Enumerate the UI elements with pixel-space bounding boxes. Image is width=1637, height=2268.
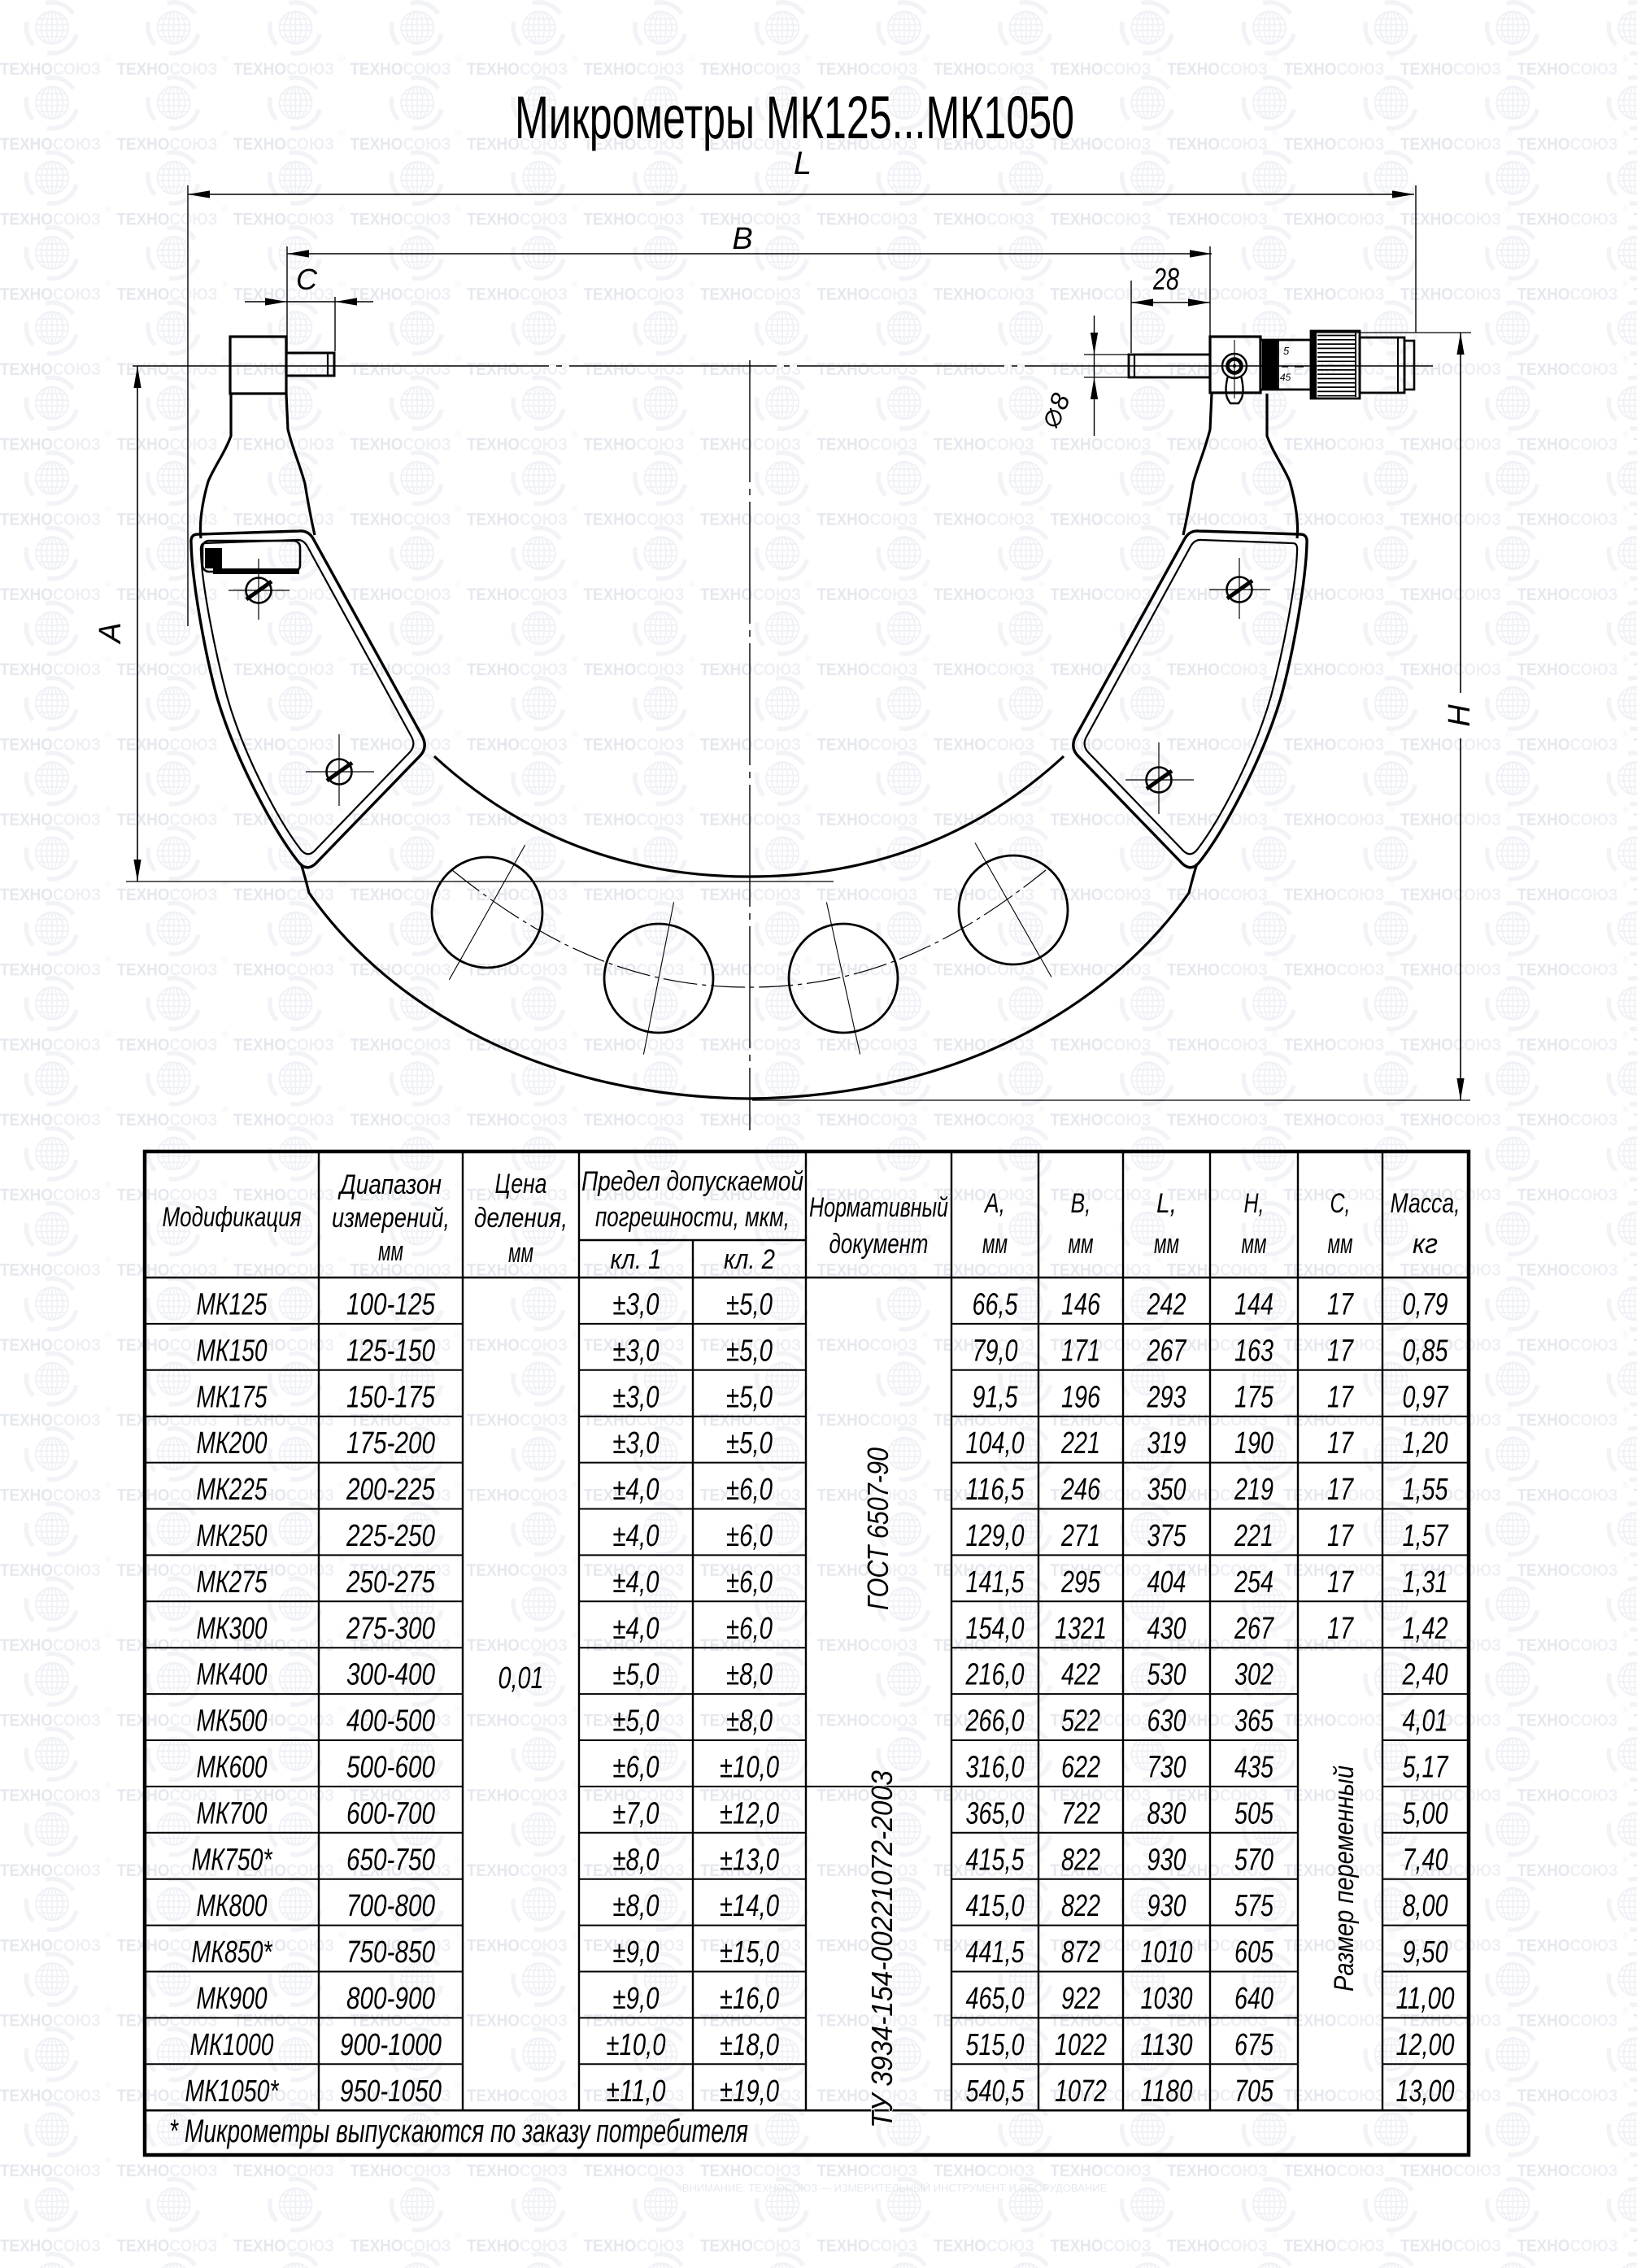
svg-text:мм: мм [1242, 1229, 1267, 1260]
svg-text:141,5: 141,5 [966, 1565, 1025, 1600]
svg-text:документ: документ [829, 1229, 929, 1260]
svg-text:1321: 1321 [1055, 1612, 1107, 1646]
svg-text:822: 822 [1061, 1889, 1100, 1923]
svg-text:мм: мм [508, 1238, 533, 1269]
svg-text:ГОСТ 6507-90: ГОСТ 6507-90 [861, 1447, 895, 1610]
svg-text:МК250: МК250 [197, 1519, 268, 1553]
svg-text:175-200: 175-200 [346, 1426, 435, 1460]
svg-text:171: 171 [1061, 1334, 1100, 1368]
svg-text:422: 422 [1061, 1658, 1100, 1692]
svg-text:365,0: 365,0 [966, 1796, 1025, 1831]
svg-text:±9,0: ±9,0 [613, 1982, 660, 2016]
svg-text:МК400: МК400 [197, 1658, 268, 1692]
svg-text:730: 730 [1147, 1751, 1186, 1785]
svg-text:17: 17 [1327, 1565, 1354, 1600]
svg-text:922: 922 [1061, 1982, 1100, 2016]
svg-text:1,57: 1,57 [1403, 1519, 1449, 1553]
svg-text:275-300: 275-300 [346, 1612, 435, 1646]
svg-text:190: 190 [1234, 1426, 1273, 1460]
svg-text:415,5: 415,5 [966, 1843, 1025, 1877]
svg-text:Модификация: Модификация [163, 1202, 302, 1233]
svg-text:±9,0: ±9,0 [613, 1935, 660, 1970]
svg-text:МК225: МК225 [197, 1473, 268, 1507]
svg-text:650-750: 650-750 [346, 1843, 435, 1877]
svg-text:640: 640 [1234, 1982, 1273, 2016]
svg-text:266,0: 266,0 [965, 1704, 1025, 1739]
svg-text:1,55: 1,55 [1403, 1473, 1449, 1507]
svg-text:Размер переменный: Размер переменный [1329, 1765, 1360, 1992]
svg-text:705: 705 [1234, 2074, 1274, 2109]
svg-text:316,0: 316,0 [966, 1751, 1025, 1785]
svg-text:505: 505 [1234, 1796, 1274, 1831]
svg-text:1,42: 1,42 [1403, 1612, 1448, 1646]
svg-text:±19,0: ±19,0 [720, 2074, 779, 2109]
svg-text:435: 435 [1234, 1751, 1274, 1785]
svg-text:225-250: 225-250 [346, 1519, 435, 1553]
svg-text:950-1050: 950-1050 [340, 2074, 442, 2109]
svg-text:2,40: 2,40 [1402, 1658, 1448, 1692]
svg-text:250-275: 250-275 [346, 1565, 435, 1600]
svg-text:±8,0: ±8,0 [613, 1889, 660, 1923]
svg-text:242: 242 [1147, 1288, 1186, 1322]
svg-text:0,97: 0,97 [1403, 1380, 1449, 1414]
svg-text:Цена: Цена [495, 1169, 547, 1199]
svg-text:±5,0: ±5,0 [726, 1334, 773, 1368]
svg-text:17: 17 [1327, 1519, 1354, 1553]
svg-text:* Микрометры выпускаются по за: * Микрометры выпускаются по заказу потре… [169, 2113, 748, 2149]
svg-text:216,0: 216,0 [965, 1658, 1025, 1692]
svg-text:17: 17 [1327, 1612, 1354, 1646]
svg-text:575: 575 [1234, 1889, 1274, 1923]
svg-text:0,85: 0,85 [1403, 1334, 1449, 1368]
svg-text:100-125: 100-125 [346, 1288, 436, 1322]
svg-text:91,5: 91,5 [973, 1380, 1019, 1414]
svg-text:Н,: Н, [1244, 1188, 1265, 1219]
svg-text:А,: А, [983, 1188, 1005, 1219]
svg-text:кл. 2: кл. 2 [724, 1244, 775, 1275]
svg-text:221: 221 [1234, 1519, 1273, 1553]
svg-text:измерений,: измерений, [332, 1203, 450, 1234]
svg-text:МК900: МК900 [197, 1982, 268, 2016]
svg-text:200-225: 200-225 [346, 1473, 435, 1507]
svg-text:622: 622 [1061, 1751, 1100, 1785]
svg-text:мм: мм [378, 1236, 403, 1267]
svg-text:13,00: 13,00 [1396, 2074, 1455, 2109]
svg-text:404: 404 [1147, 1565, 1186, 1600]
svg-text:17: 17 [1327, 1380, 1354, 1414]
svg-text:872: 872 [1061, 1935, 1100, 1970]
svg-text:415,0: 415,0 [966, 1889, 1025, 1923]
svg-text:±4,0: ±4,0 [613, 1473, 660, 1507]
svg-text:700-800: 700-800 [346, 1889, 435, 1923]
svg-text:±8,0: ±8,0 [726, 1704, 773, 1739]
svg-text:МК500: МК500 [197, 1704, 268, 1739]
svg-text:17: 17 [1327, 1288, 1354, 1322]
svg-text:МК200: МК200 [197, 1426, 268, 1460]
svg-text:522: 522 [1061, 1704, 1100, 1739]
svg-text:МК600: МК600 [197, 1751, 268, 1785]
svg-text:деления,: деления, [474, 1203, 568, 1234]
svg-text:319: 319 [1147, 1426, 1186, 1460]
svg-text:±7,0: ±7,0 [613, 1796, 660, 1831]
svg-text:630: 630 [1147, 1704, 1186, 1739]
svg-text:12,00: 12,00 [1396, 2028, 1455, 2062]
svg-text:Предел допускаемой: Предел допускаемой [581, 1166, 803, 1197]
svg-text:B: B [732, 222, 752, 256]
svg-text:МК300: МК300 [197, 1612, 268, 1646]
svg-text:900-1000: 900-1000 [340, 2028, 442, 2062]
svg-text:830: 830 [1147, 1796, 1186, 1831]
svg-text:мм: мм [1069, 1229, 1094, 1260]
svg-text:350: 350 [1147, 1473, 1186, 1507]
svg-text:±10,0: ±10,0 [720, 1751, 779, 1785]
svg-text:±6,0: ±6,0 [613, 1751, 660, 1785]
svg-text:28: 28 [1152, 263, 1179, 297]
svg-text:0,01: 0,01 [499, 1661, 544, 1696]
svg-text:144: 144 [1234, 1288, 1273, 1322]
svg-text:L: L [794, 146, 812, 181]
svg-text:МК1000: МК1000 [190, 2028, 274, 2062]
svg-text:9,50: 9,50 [1403, 1935, 1448, 1970]
svg-text:±4,0: ±4,0 [613, 1565, 660, 1600]
svg-text:822: 822 [1061, 1843, 1100, 1877]
svg-text:530: 530 [1147, 1658, 1186, 1692]
svg-text:441,5: 441,5 [966, 1935, 1025, 1970]
svg-text:±4,0: ±4,0 [613, 1519, 660, 1553]
svg-text:930: 930 [1147, 1889, 1186, 1923]
svg-text:605: 605 [1234, 1935, 1274, 1970]
svg-text:МК275: МК275 [197, 1565, 268, 1600]
svg-text:±8,0: ±8,0 [726, 1658, 773, 1692]
svg-text:±5,0: ±5,0 [726, 1288, 773, 1322]
svg-text:±16,0: ±16,0 [720, 1982, 779, 2016]
svg-text:ВНИМАНИЕ: ТЕХНОСОЮЗ — ИЗМЕРИТЕ: ВНИМАНИЕ: ТЕХНОСОЮЗ — ИЗМЕРИТЕЛЬНЫЙ ИНСТ… [682, 2182, 1108, 2194]
svg-text:L,: L, [1156, 1188, 1177, 1219]
svg-text:±12,0: ±12,0 [720, 1796, 779, 1831]
svg-text:±6,0: ±6,0 [726, 1519, 773, 1553]
svg-text:±5,0: ±5,0 [726, 1426, 773, 1460]
svg-text:МК150: МК150 [197, 1334, 268, 1368]
svg-text:±11,0: ±11,0 [607, 2074, 666, 2109]
svg-text:271: 271 [1060, 1519, 1100, 1553]
svg-text:675: 675 [1234, 2028, 1274, 2062]
svg-text:17: 17 [1327, 1426, 1354, 1460]
svg-text:750-850: 750-850 [346, 1935, 435, 1970]
svg-text:66,5: 66,5 [973, 1288, 1019, 1322]
svg-text:500-600: 500-600 [346, 1751, 435, 1785]
svg-text:ТУ 3934-154-00221072-2003: ТУ 3934-154-00221072-2003 [865, 1770, 899, 2128]
svg-text:267: 267 [1234, 1612, 1274, 1646]
svg-text:±3,0: ±3,0 [613, 1334, 660, 1368]
svg-text:1022: 1022 [1055, 2028, 1107, 2062]
svg-text:1030: 1030 [1141, 1982, 1193, 2016]
svg-text:246: 246 [1060, 1473, 1100, 1507]
svg-text:±5,0: ±5,0 [726, 1380, 773, 1414]
svg-text:C: C [296, 263, 318, 296]
svg-text:±5,0: ±5,0 [613, 1704, 660, 1739]
svg-text:±15,0: ±15,0 [720, 1935, 779, 1970]
svg-text:116,5: 116,5 [966, 1473, 1025, 1507]
svg-text:±4,0: ±4,0 [613, 1612, 660, 1646]
svg-text:125-150: 125-150 [346, 1334, 435, 1368]
svg-text:4,01: 4,01 [1403, 1704, 1448, 1739]
svg-text:В,: В, [1071, 1188, 1091, 1219]
svg-text:5,00: 5,00 [1403, 1796, 1448, 1831]
svg-text:±8,0: ±8,0 [613, 1843, 660, 1877]
svg-text:17: 17 [1327, 1334, 1354, 1368]
svg-text:МК750*: МК750* [192, 1843, 273, 1877]
svg-text:7,40: 7,40 [1403, 1843, 1448, 1877]
svg-text:Нормативный: Нормативный [809, 1192, 948, 1223]
svg-text:Диапазон: Диапазон [337, 1169, 442, 1200]
svg-text:±3,0: ±3,0 [613, 1288, 660, 1322]
svg-text:150-175: 150-175 [346, 1380, 436, 1414]
svg-text:570: 570 [1234, 1843, 1273, 1877]
svg-text:375: 375 [1147, 1519, 1187, 1553]
svg-text:±10,0: ±10,0 [607, 2028, 666, 2062]
svg-text:±6,0: ±6,0 [726, 1612, 773, 1646]
svg-text:293: 293 [1147, 1380, 1186, 1414]
svg-text:5: 5 [1283, 345, 1290, 357]
svg-text:722: 722 [1061, 1796, 1100, 1831]
svg-text:±5,0: ±5,0 [613, 1658, 660, 1692]
svg-text:129,0: 129,0 [966, 1519, 1025, 1553]
svg-text:154,0: 154,0 [966, 1612, 1025, 1646]
svg-text:±3,0: ±3,0 [613, 1380, 660, 1414]
svg-text:400-500: 400-500 [346, 1704, 435, 1739]
svg-text:погрешности, мкм,: погрешности, мкм, [595, 1202, 790, 1233]
svg-text:1,31: 1,31 [1403, 1565, 1448, 1600]
svg-text:кг: кг [1413, 1229, 1438, 1260]
svg-text:45: 45 [1280, 372, 1291, 383]
svg-text:МК1050*: МК1050* [185, 2074, 280, 2109]
svg-text:219: 219 [1234, 1473, 1273, 1507]
svg-text:540,5: 540,5 [966, 2074, 1025, 2109]
svg-text:930: 930 [1147, 1843, 1186, 1877]
svg-text:196: 196 [1061, 1380, 1101, 1414]
svg-text:±18,0: ±18,0 [720, 2028, 779, 2062]
svg-text:1130: 1130 [1141, 2028, 1193, 2062]
svg-text:146: 146 [1061, 1288, 1101, 1322]
svg-text:430: 430 [1147, 1612, 1186, 1646]
svg-text:5,17: 5,17 [1403, 1751, 1449, 1785]
svg-text:104,0: 104,0 [966, 1426, 1025, 1460]
svg-text:8,00: 8,00 [1403, 1889, 1448, 1923]
svg-text:±13,0: ±13,0 [720, 1843, 779, 1877]
svg-text:Микрометры МК125...МК1050: Микрометры МК125...МК1050 [515, 84, 1074, 151]
svg-text:79,0: 79,0 [973, 1334, 1018, 1368]
svg-text:0,79: 0,79 [1403, 1288, 1448, 1322]
svg-text:МК850*: МК850* [192, 1935, 273, 1970]
svg-text:11,00: 11,00 [1396, 1982, 1455, 2016]
svg-text:800-900: 800-900 [346, 1982, 435, 2016]
svg-text:365: 365 [1234, 1704, 1274, 1739]
svg-text:300-400: 300-400 [346, 1658, 435, 1692]
svg-text:302: 302 [1234, 1658, 1273, 1692]
svg-text:A: A [94, 622, 128, 644]
svg-text:1010: 1010 [1141, 1935, 1193, 1970]
svg-text:254: 254 [1234, 1565, 1273, 1600]
svg-text:±6,0: ±6,0 [726, 1565, 773, 1600]
svg-text:МК175: МК175 [197, 1380, 268, 1414]
svg-text:±14,0: ±14,0 [720, 1889, 779, 1923]
svg-text:465,0: 465,0 [966, 1982, 1025, 2016]
svg-text:175: 175 [1234, 1380, 1274, 1414]
svg-text:С,: С, [1330, 1188, 1351, 1219]
svg-text:17: 17 [1327, 1473, 1354, 1507]
svg-text:515,0: 515,0 [966, 2028, 1025, 2062]
svg-text:221: 221 [1060, 1426, 1100, 1460]
svg-text:1072: 1072 [1055, 2074, 1107, 2109]
svg-text:МК800: МК800 [197, 1889, 268, 1923]
svg-text:600-700: 600-700 [346, 1796, 435, 1831]
svg-text:мм: мм [982, 1229, 1008, 1260]
svg-text:295: 295 [1060, 1565, 1100, 1600]
svg-text:мм: мм [1154, 1229, 1179, 1260]
svg-text:мм: мм [1328, 1229, 1353, 1260]
svg-text:1180: 1180 [1141, 2074, 1193, 2109]
svg-text:МК700: МК700 [197, 1796, 268, 1831]
svg-text:±6,0: ±6,0 [726, 1473, 773, 1507]
svg-text:кл. 1: кл. 1 [611, 1244, 662, 1275]
svg-text:МК125: МК125 [197, 1288, 268, 1322]
svg-text:H: H [1443, 704, 1477, 727]
svg-text:Масса,: Масса, [1391, 1188, 1461, 1219]
svg-text:163: 163 [1234, 1334, 1273, 1368]
svg-text:1,20: 1,20 [1403, 1426, 1448, 1460]
svg-text:±3,0: ±3,0 [613, 1426, 660, 1460]
svg-text:267: 267 [1147, 1334, 1187, 1368]
